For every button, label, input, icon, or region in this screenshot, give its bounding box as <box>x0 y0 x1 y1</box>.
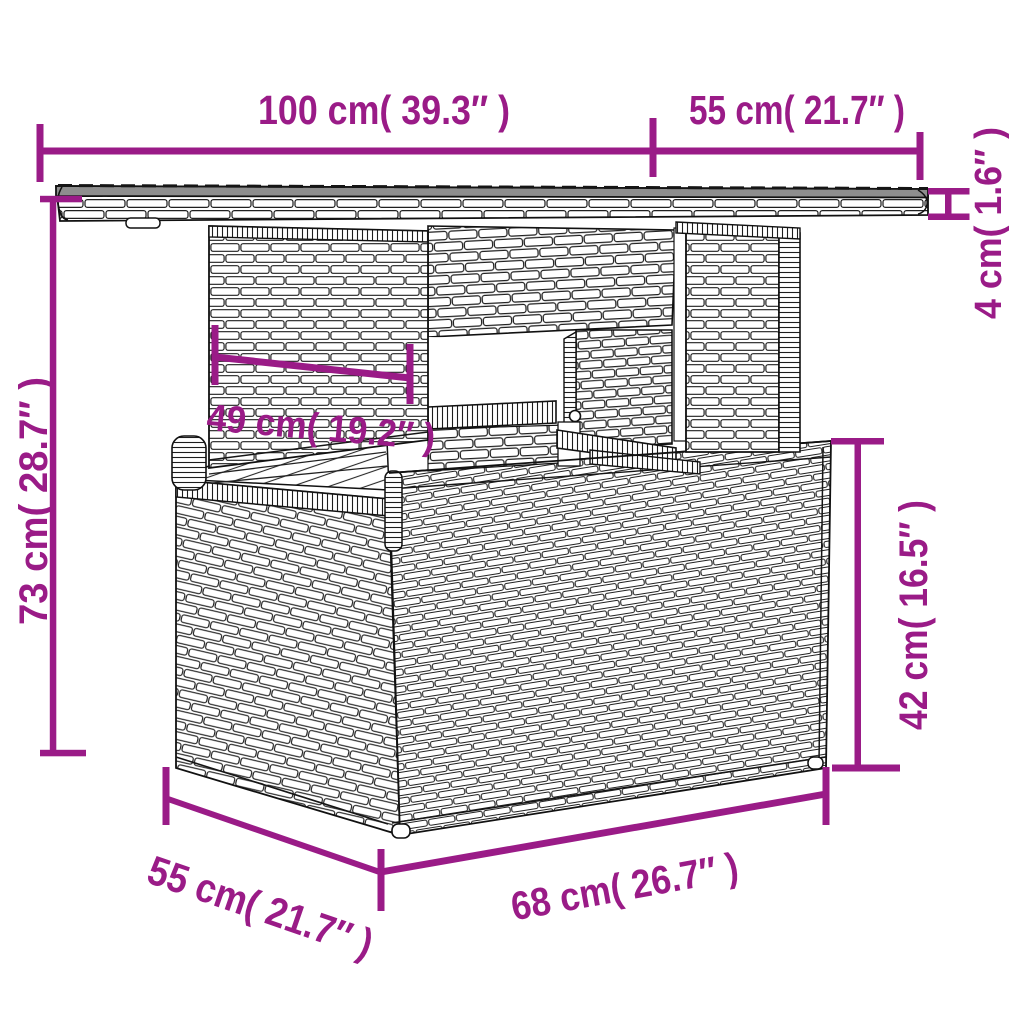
svg-text:4 cm( 1.6″ ): 4 cm( 1.6″ ) <box>968 127 1010 319</box>
svg-text:73 cm( 28.7″ ): 73 cm( 28.7″ ) <box>12 377 56 625</box>
svg-text:42 cm( 16.5″ ): 42 cm( 16.5″ ) <box>892 500 936 730</box>
svg-text:100 cm( 39.3″ ): 100 cm( 39.3″ ) <box>258 87 510 133</box>
svg-text:55 cm( 21.7″ ): 55 cm( 21.7″ ) <box>689 87 905 133</box>
